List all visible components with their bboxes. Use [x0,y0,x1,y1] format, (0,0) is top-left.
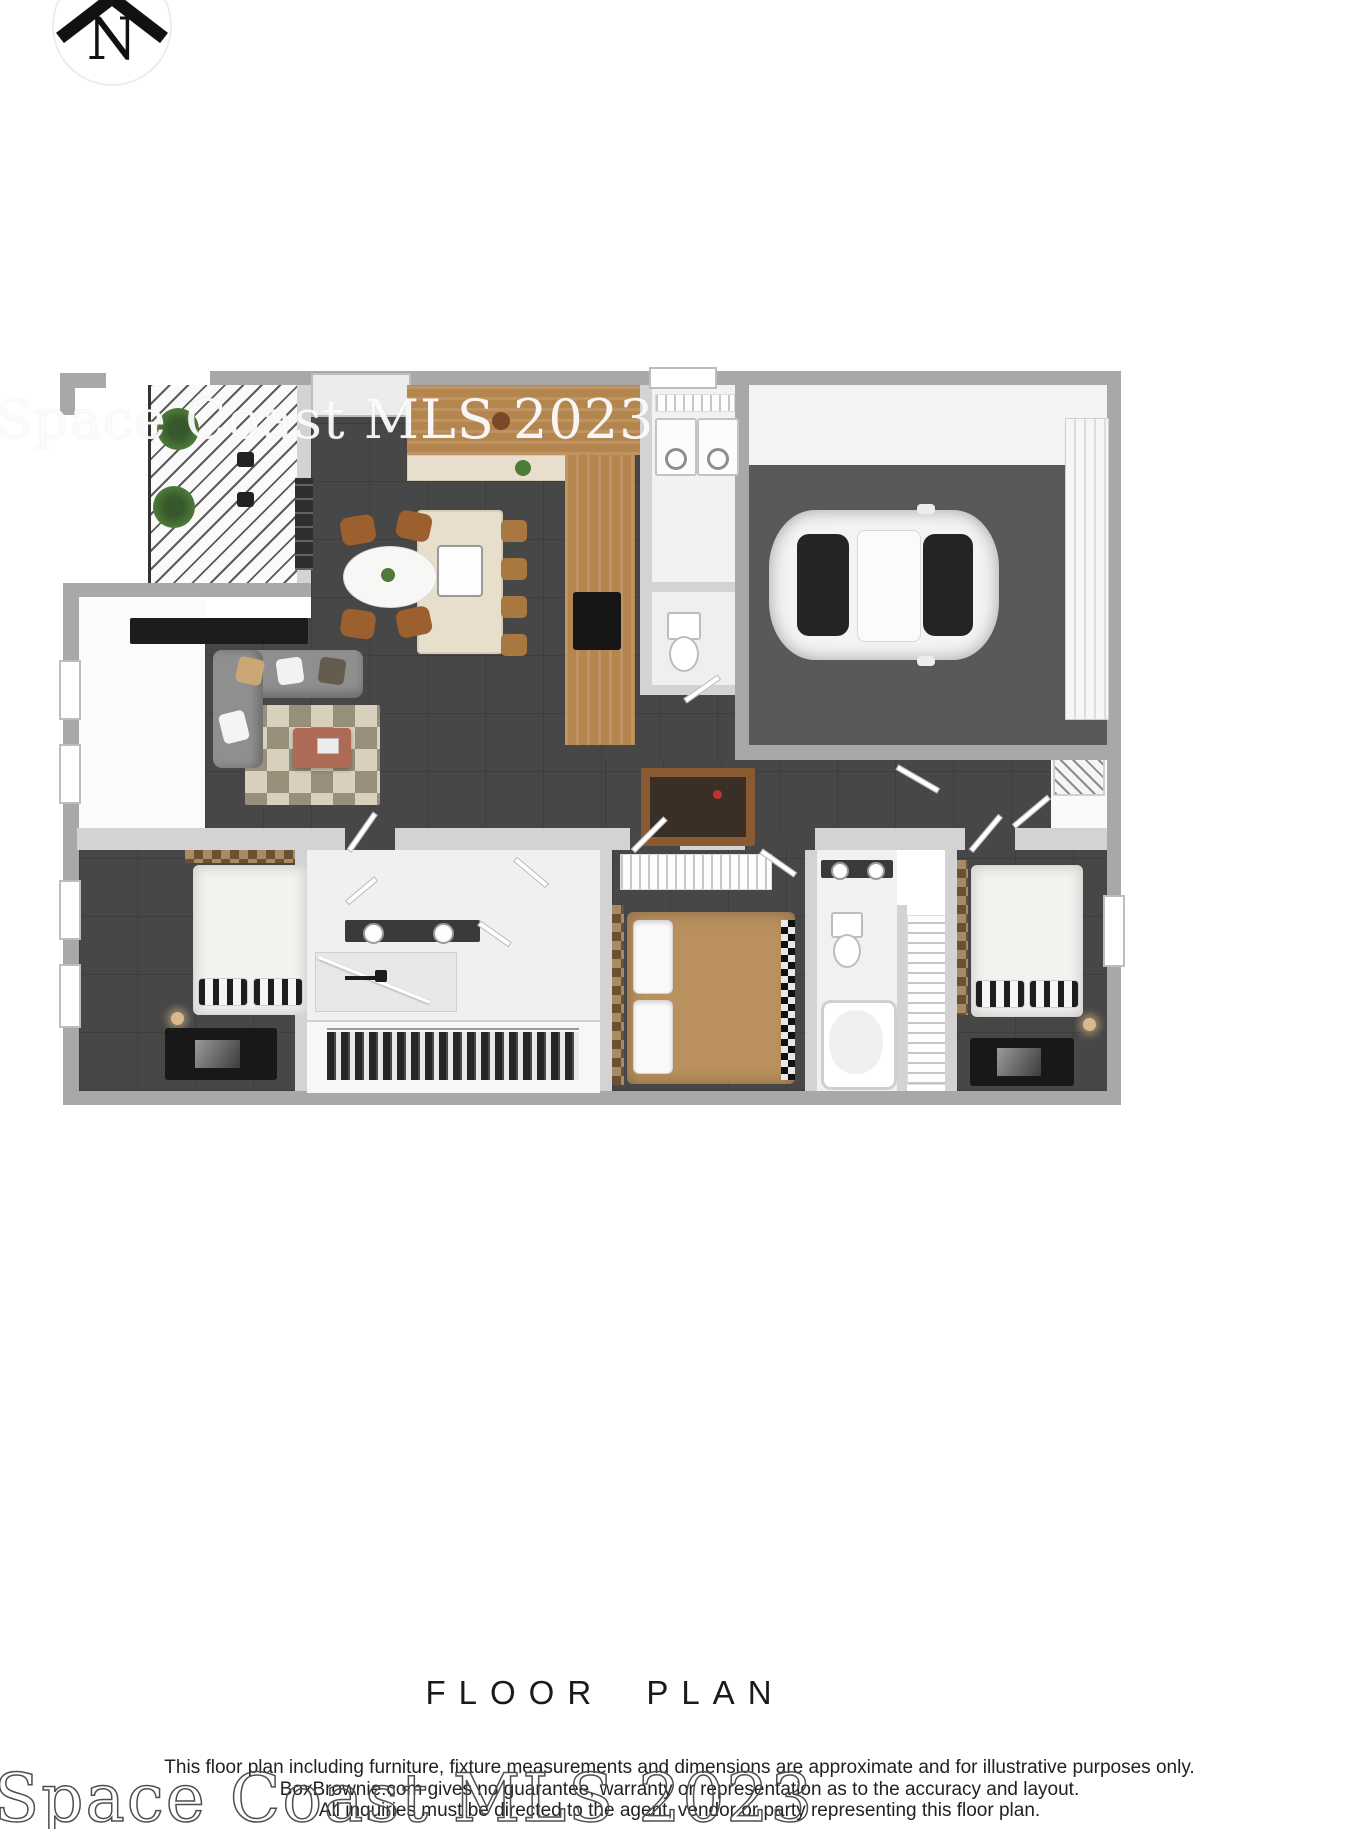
sofa-pillow-dark [317,656,346,685]
master-rug-art [195,1040,240,1068]
bar-stool-1 [501,520,527,542]
wall-garage-bottom [735,745,1107,760]
bedroom3-accent-wall [957,860,968,1015]
laundry-shelf [655,394,735,412]
floor-plan-render [45,360,1141,1108]
dryer-door-icon [707,448,729,470]
north-compass-icon: N [52,0,172,86]
watermark-bottom: Space Coast MLS 2023 [0,1760,814,1829]
linen-closet [907,915,947,1085]
range-cooktop [573,592,621,650]
window-laundry [649,367,717,389]
window-master-1 [59,880,81,940]
dining-chair-3 [339,608,377,640]
wall-bath2-linen [897,905,907,1091]
wall-linen-bedroom3 [945,850,957,1091]
patio-chair-1 [237,452,254,467]
counter-plant [515,460,531,476]
toilet-bowl-powder [669,636,699,672]
shower-fixture-arm [345,976,379,980]
bathtub-basin [829,1010,883,1074]
island-sink [437,545,483,597]
master-sink-1 [363,923,384,944]
bar-stool-3 [501,596,527,618]
patio-slider-door [295,478,313,570]
master-shower [315,952,457,1012]
car-windshield [923,534,973,636]
floor-plan-page: N [0,0,1359,1829]
porch-window [1053,756,1105,796]
closet-hanging-clothes [327,1032,579,1080]
toilet-bowl-bath2 [833,934,861,968]
car-mirror-bottom [917,656,935,666]
car-roof [857,530,921,642]
bedroom2-pillow-2 [633,1000,673,1074]
bedroom2-closet-shelf [620,854,772,890]
master-sink-2 [433,923,454,944]
bedroom3-pillow-1 [975,980,1025,1008]
sofa-pillow-tan [235,656,266,687]
watermark-left: Space Coast MLS 2023 [0,388,654,451]
window-bedroom3 [1103,895,1125,967]
shower-head [375,970,387,982]
coffee-table-books [317,738,339,754]
wall-left-wing-top [63,583,311,597]
table-centerpiece [381,568,395,582]
kitchen-counter [407,455,569,481]
bedroom3-pillow-2 [1029,980,1079,1008]
master-accent-wall [185,850,295,863]
wall-wc-hall [640,685,735,695]
window-left-wing-2 [59,744,81,804]
nook-red-accent [713,790,722,799]
wall-bath-bedroom2 [600,850,612,1091]
wall-right [1107,371,1121,1105]
hall-display-nook [641,768,755,846]
bedroom2-checker-tile [781,920,795,1080]
page-title: FLOOR PLAN [0,1674,1210,1712]
bar-stool-4 [501,634,527,656]
wall-bottom [63,1091,1121,1105]
bar-stool-2 [501,558,527,580]
window-master-2 [59,964,81,1028]
north-letter: N [54,10,170,68]
wall-laundry-wc [640,582,735,592]
garage-apron [749,385,1107,465]
car-mirror-top [917,504,935,514]
wall-bedroom2-bath2 [805,850,817,1091]
bedroom2-pillow-1 [633,920,673,994]
bedroom3-lamp [1083,1018,1096,1031]
master-pillow-2 [253,978,303,1006]
master-pillow-1 [198,978,248,1006]
car-rear-window [797,534,849,636]
bath2-sink-1 [831,862,849,880]
sofa-pillow-white [275,656,304,685]
tv-media-unit [130,618,308,644]
laundry-floor [652,385,735,582]
patio-chair-2 [237,492,254,507]
door-gap-bath-hall [745,828,815,850]
wall-hall-bedrooms [77,828,1107,850]
window-left-wing-1 [59,660,81,720]
garage-door [1065,418,1109,720]
patio-plant-2 [153,486,195,528]
bedroom3-rug-art [997,1048,1041,1076]
master-lamp [171,1012,184,1025]
closet-rod [327,1028,579,1030]
bedroom2-accent-wall [612,905,624,1085]
bath2-sink-2 [867,862,885,880]
car [769,510,999,660]
washer-door-icon [665,448,687,470]
